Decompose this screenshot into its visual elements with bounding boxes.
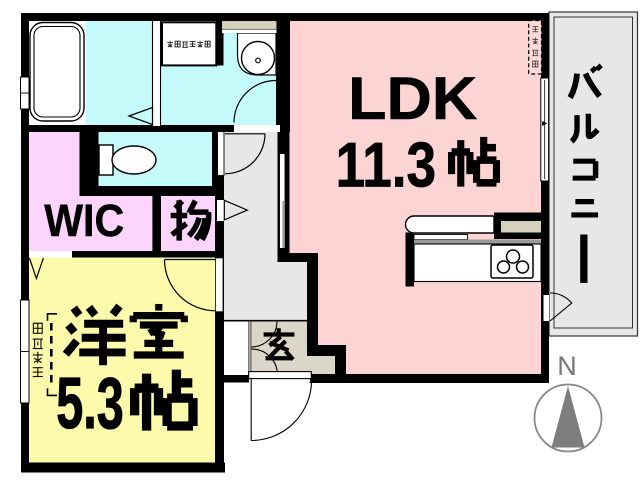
svg-text:LDK: LDK [348, 65, 477, 132]
svg-text:WIC: WIC [44, 195, 124, 246]
svg-text:5.3: 5.3 [56, 363, 124, 444]
svg-text:N: N [557, 351, 577, 381]
svg-text:11.3: 11.3 [336, 131, 437, 201]
